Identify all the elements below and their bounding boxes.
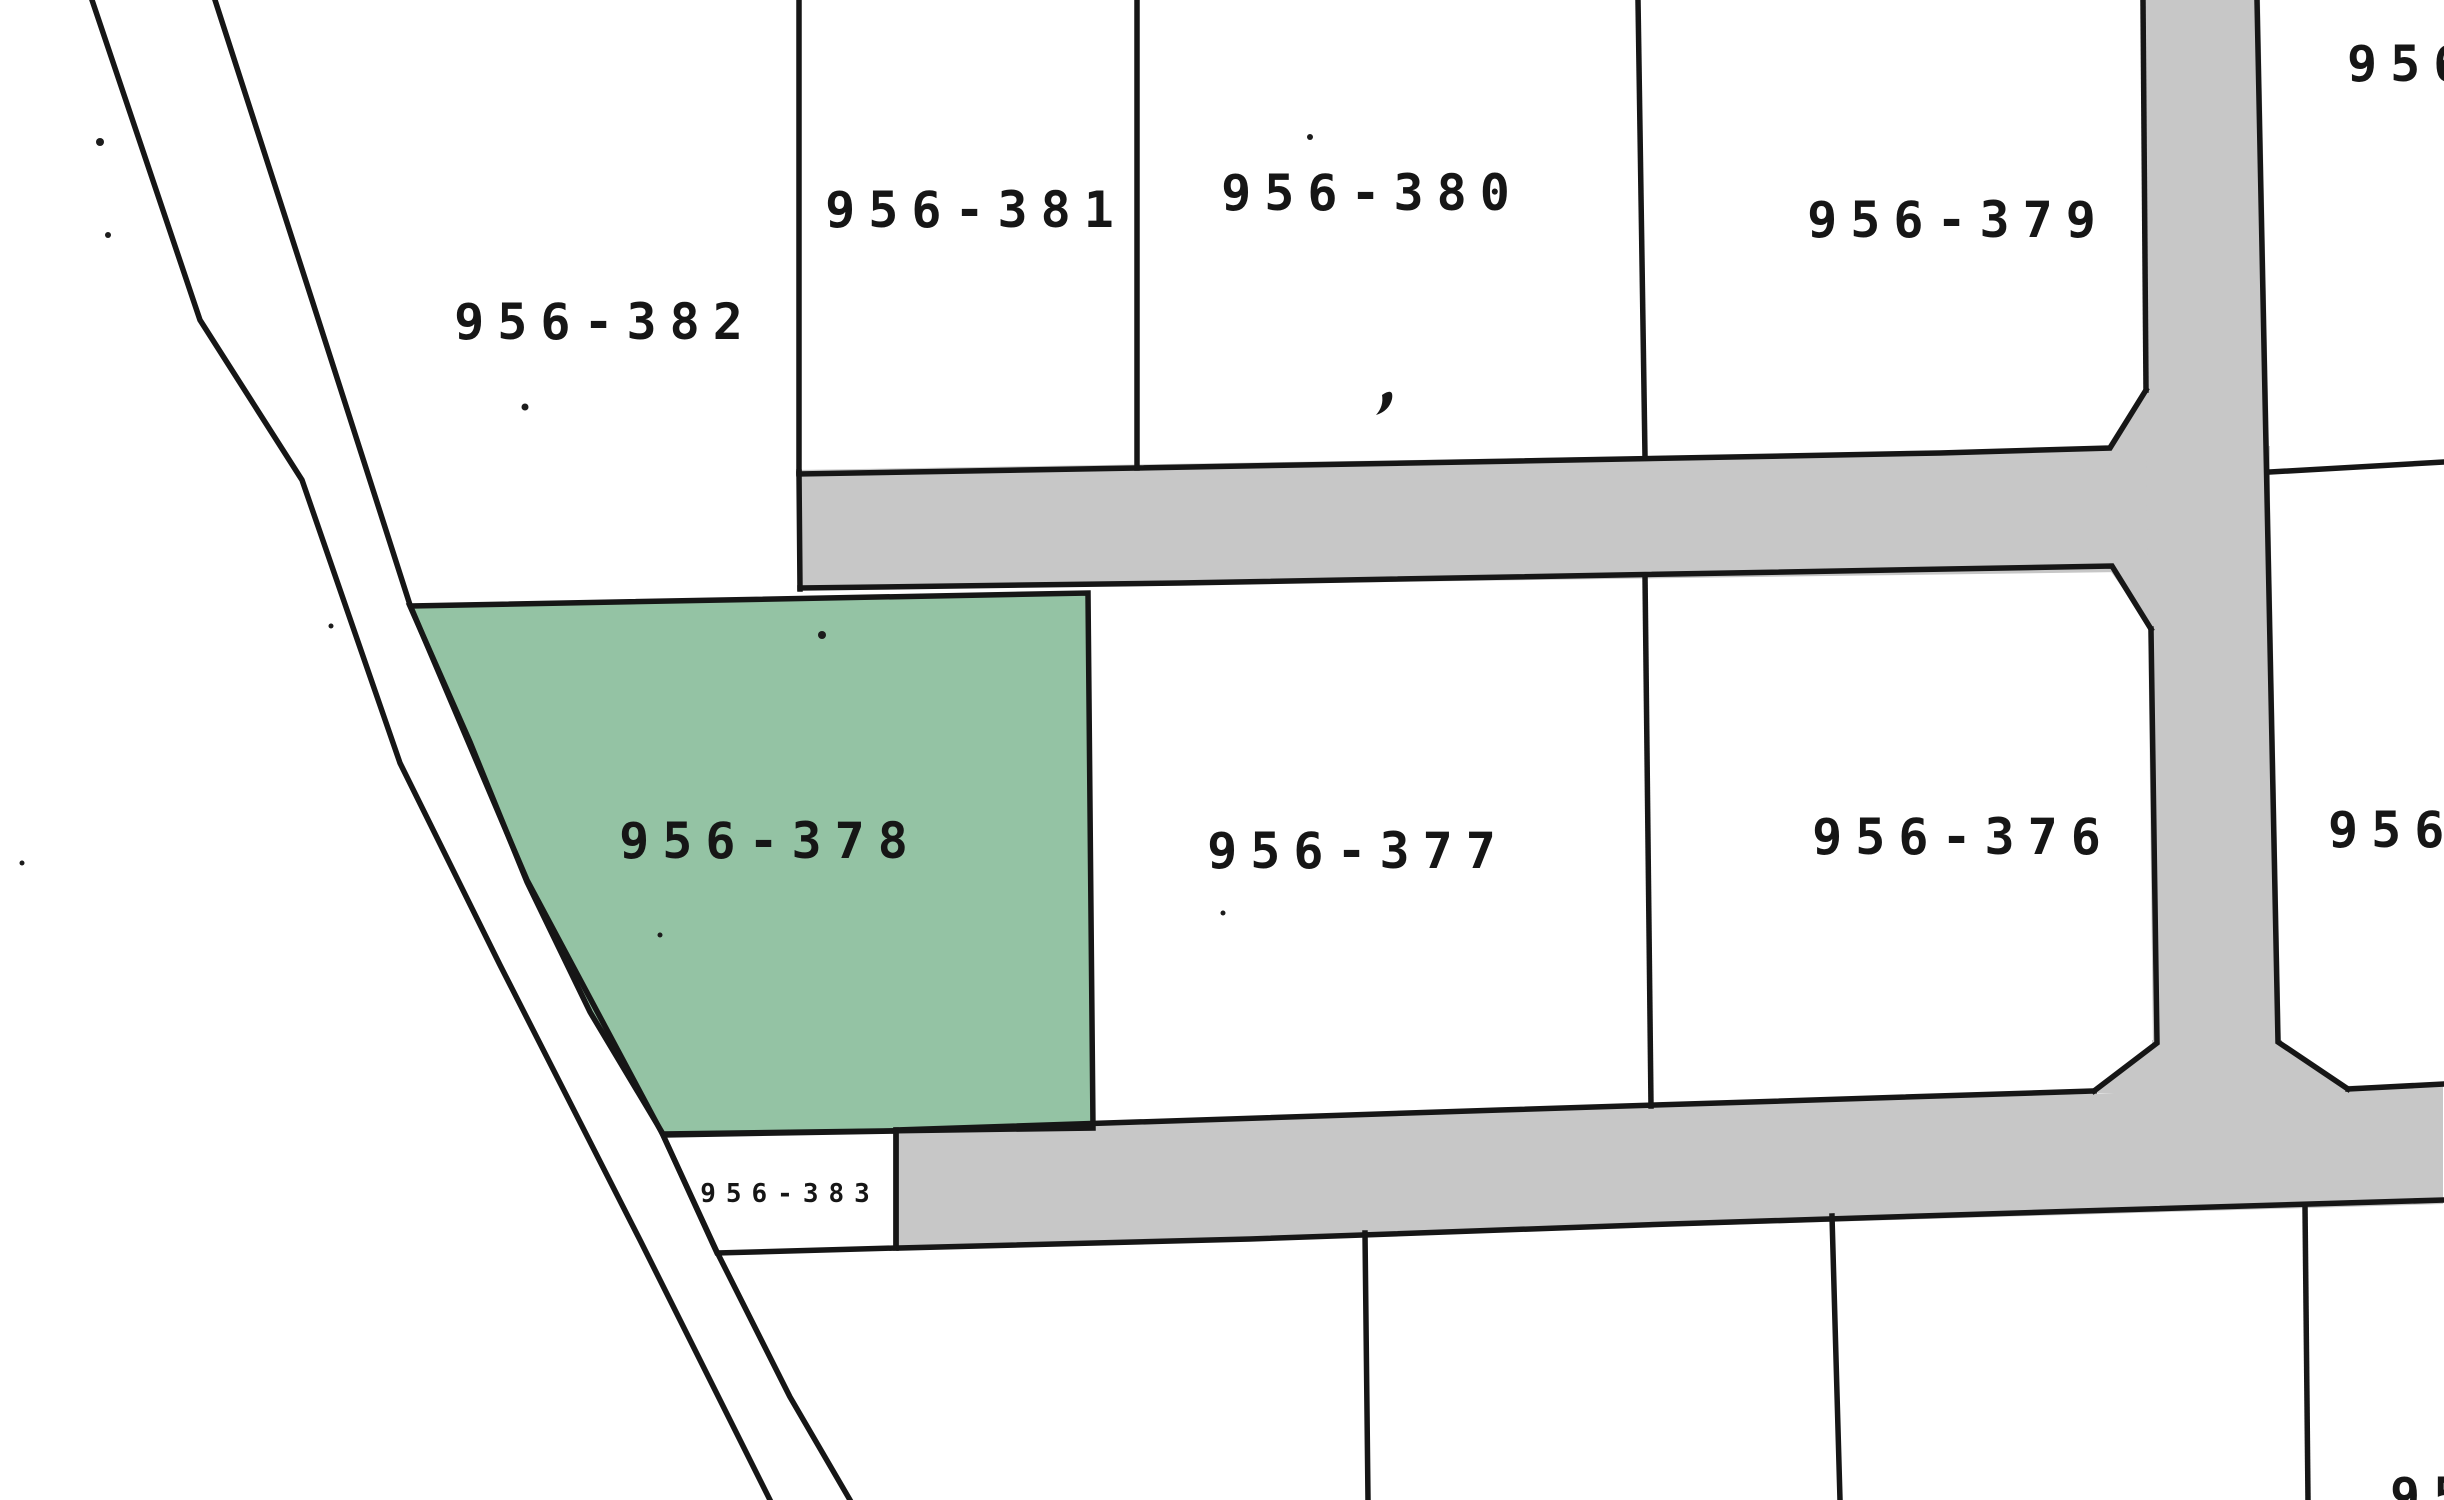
speck (1307, 134, 1313, 140)
upper-road-left-end (799, 472, 800, 589)
speck (522, 404, 529, 411)
label-parcel-956-376: 956-376 (1812, 808, 2114, 866)
label-parcel-956-378: 956-378 (619, 812, 921, 870)
speck (96, 138, 104, 146)
map-canvas: 956-382 956-381 956-380 956-379 956-378 … (0, 0, 2444, 1500)
boundary-bottom-row-1 (1365, 1233, 1368, 1500)
speck (20, 861, 25, 866)
label-parcel-bottom-right-partial: 95 (2390, 1467, 2444, 1500)
label-parcel-956-377: 956-377 (1207, 822, 1509, 880)
label-parcel-956-383: 956-383 (700, 1179, 880, 1209)
speck (818, 631, 826, 639)
speck (658, 933, 663, 938)
speck (329, 624, 334, 629)
vertical-road-left-edge-upper (2143, 0, 2146, 390)
label-parcel-956-379: 956-379 (1807, 191, 2109, 249)
speck (1221, 911, 1226, 916)
label-parcel-top-right-partial: 956 (2347, 35, 2444, 93)
speck (105, 232, 111, 238)
boundary-bottom-row-3 (2305, 1206, 2308, 1500)
label-parcel-956-381: 956-381 (825, 181, 1127, 239)
label-parcel-956-382: 956-382 (454, 293, 756, 351)
label-parcel-956-380: 956-380 (1221, 164, 1523, 222)
label-parcel-right-partial: 956 (2328, 801, 2444, 859)
parcel-map-svg: 956-382 956-381 956-380 956-379 956-378 … (0, 0, 2444, 1500)
